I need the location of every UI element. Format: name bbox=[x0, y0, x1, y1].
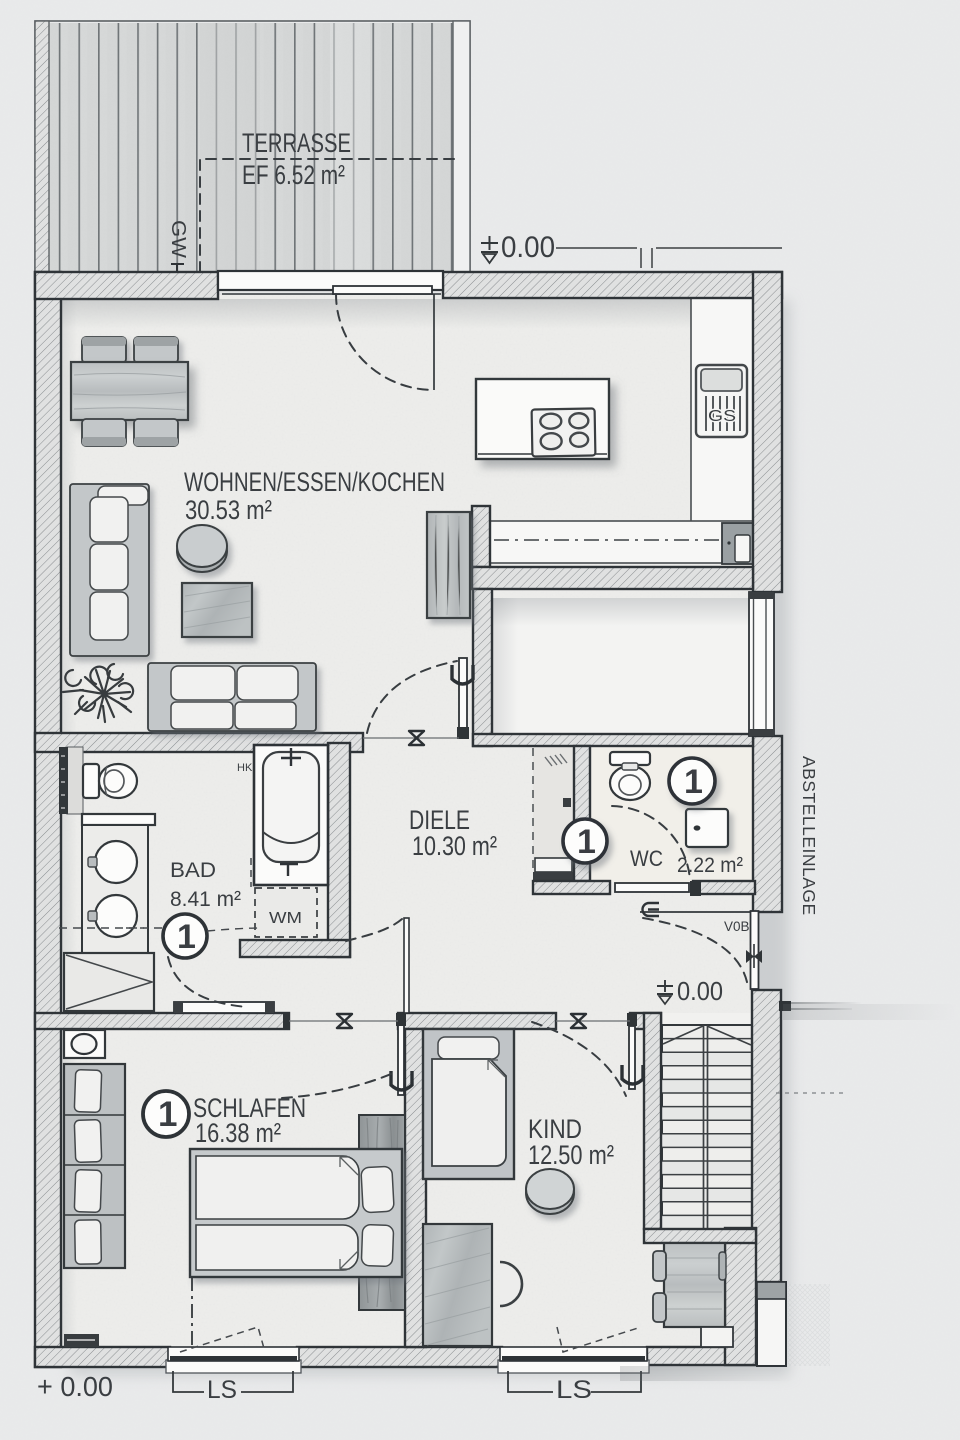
svg-text:0.00: 0.00 bbox=[501, 231, 555, 264]
svg-text:1: 1 bbox=[177, 918, 196, 956]
svg-text:1: 1 bbox=[158, 1095, 177, 1134]
svg-text:GW: GW bbox=[167, 220, 189, 258]
svg-text:12.50 m²: 12.50 m² bbox=[528, 1140, 614, 1170]
svg-text:16.38 m²: 16.38 m² bbox=[195, 1118, 281, 1148]
svg-text:2.22 m²: 2.22 m² bbox=[677, 853, 743, 877]
svg-text:TERRASSE: TERRASSE bbox=[242, 128, 351, 158]
svg-text:1: 1 bbox=[577, 823, 596, 861]
svg-text:WM: WM bbox=[269, 910, 302, 927]
svg-text:0.00: 0.00 bbox=[677, 976, 723, 1006]
svg-text:GS: GS bbox=[708, 408, 736, 425]
svg-text:+ 0.00: + 0.00 bbox=[37, 1371, 113, 1402]
svg-text:LS: LS bbox=[556, 1376, 592, 1404]
svg-text:WC: WC bbox=[630, 846, 663, 871]
svg-text:10.30 m²: 10.30 m² bbox=[412, 831, 497, 861]
svg-text:LS: LS bbox=[207, 1376, 237, 1404]
svg-text:EF 6.52 m²: EF 6.52 m² bbox=[242, 160, 345, 190]
svg-text:30.53 m²: 30.53 m² bbox=[185, 495, 272, 525]
svg-text:1: 1 bbox=[684, 763, 703, 801]
svg-text:V0B: V0B bbox=[724, 919, 750, 934]
svg-text:BAD: BAD bbox=[170, 858, 216, 882]
svg-text:HK: HK bbox=[237, 762, 253, 774]
svg-text:WOHNEN/ESSEN/KOCHEN: WOHNEN/ESSEN/KOCHEN bbox=[184, 467, 445, 497]
svg-text:ABSTELLEINLAGE: ABSTELLEINLAGE bbox=[799, 756, 819, 916]
svg-text:8.41 m²: 8.41 m² bbox=[170, 887, 241, 911]
